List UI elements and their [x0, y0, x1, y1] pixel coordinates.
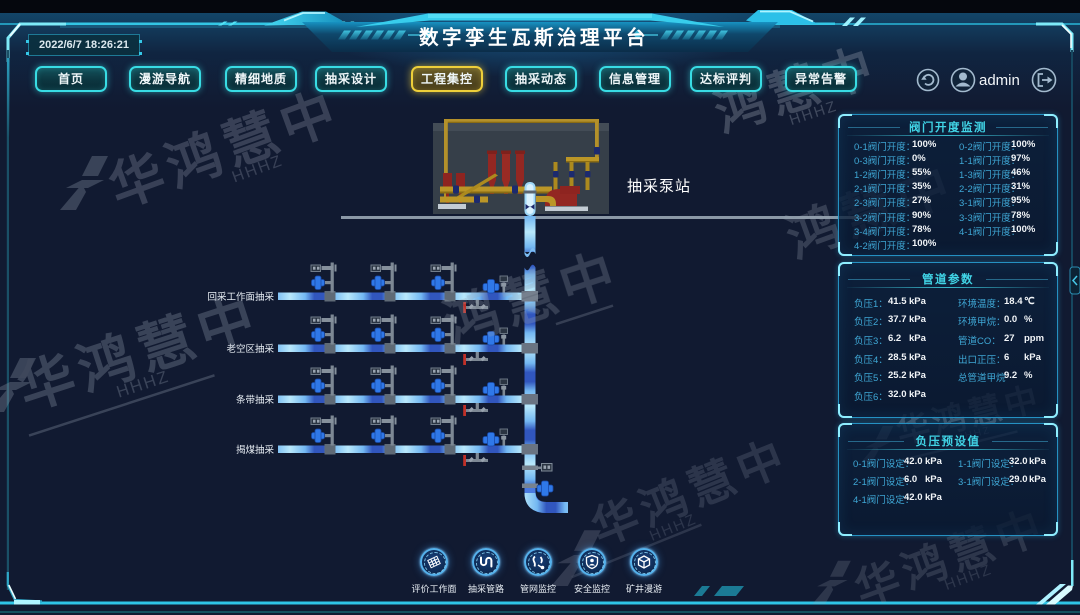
svg-text:数字孪生瓦斯治理平台: 数字孪生瓦斯治理平台 [419, 26, 649, 49]
svg-text:华鸿慧中: 华鸿慧中 [584, 429, 796, 555]
svg-text:条带抽采: 条带抽采 [236, 394, 275, 406]
svg-text:揭煤抽采: 揭煤抽采 [236, 444, 275, 456]
svg-text:华鸿慧中: 华鸿慧中 [102, 80, 350, 219]
